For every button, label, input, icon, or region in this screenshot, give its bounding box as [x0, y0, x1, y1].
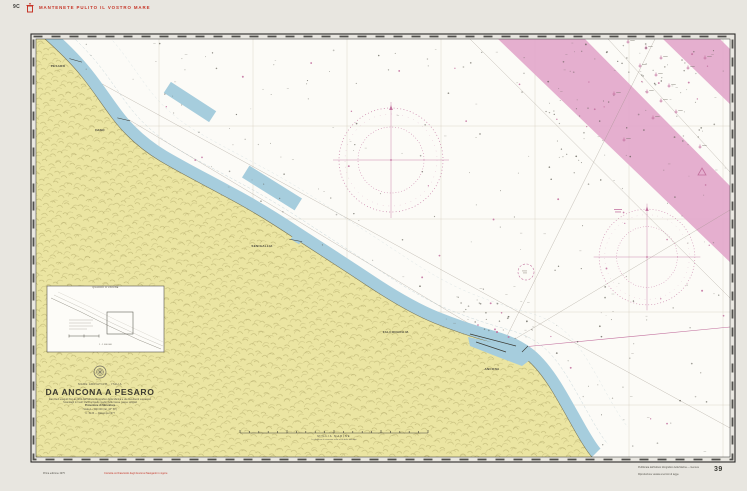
inset-title: QUADRO D'UNIONE [47, 287, 164, 289]
correction-note: Corretta col Fascicolo degli Avvisi ai N… [104, 472, 229, 476]
inset-scale: 1 : 1 000 000 [47, 344, 164, 346]
port-label-pesaro: PESARO [51, 64, 66, 68]
chart-map [0, 0, 747, 491]
port-label-ancona: ANCONA [484, 367, 499, 371]
keep-sea-clean-notice: MANTENETE PULITO IL VOSTRO MARE [39, 5, 150, 10]
title-block-edition: I.I. 3133 — Ristampa 1977 [20, 412, 180, 415]
scale-bar-note: Le distanze si misurano sulla scala dell… [239, 439, 429, 441]
scale-bar-label: MIGLIA MARINE [239, 435, 429, 438]
port-label-senigallia: SENIGALLIA [251, 244, 272, 248]
publisher-note-2: Riproduzione vietata a termini di legge [638, 473, 708, 476]
nautical-chart-sheet: 9C MANTENETE PULITO IL VOSTRO MARE MARE … [0, 0, 747, 491]
title-block-region: MARE ADRIATICO - ITALIA [20, 382, 180, 386]
port-label-falconara: FALCONARA M. [383, 330, 410, 334]
port-label-fano: FANO [95, 128, 105, 132]
trash-bin-icon [26, 3, 34, 13]
sheet-code: 9C [13, 4, 20, 10]
chart-number: 39 [714, 466, 723, 473]
chart-title: DA ANCONA A PESARO [20, 387, 180, 397]
edition-note: Prima edizione 1975 [43, 472, 65, 475]
inset-map [47, 286, 164, 352]
publisher-note-1: Pubblicata dall'Istituto Idrografico del… [638, 466, 708, 469]
title-block: MARE ADRIATICO - ITALIA DA ANCONA A PESA… [20, 382, 180, 415]
